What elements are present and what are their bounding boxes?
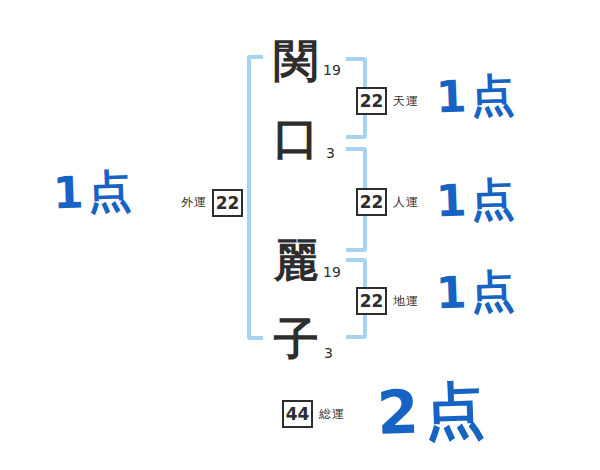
heaven-luck-label: 天運 (393, 95, 419, 107)
stroke-count-3: 19 (323, 265, 341, 279)
heaven-luck-score: 1点 (435, 73, 519, 120)
name-char-1: 関 (269, 38, 323, 83)
name-char-3: 麗 (269, 238, 323, 283)
person-luck-value-box: 22 (356, 188, 387, 216)
outer-luck-bracket (247, 55, 263, 340)
name-char-2: 口 (269, 116, 323, 161)
total-luck-label: 総運 (319, 408, 345, 420)
stroke-count-4: 3 (324, 346, 333, 360)
person-luck-score: 1点 (435, 177, 519, 224)
total-luck-value-box: 44 (282, 400, 313, 428)
total-luck-score: 2点 (376, 379, 492, 443)
outer-luck-value-box: 22 (212, 189, 243, 217)
earth-luck-label: 地運 (393, 295, 419, 307)
earth-luck-score: 1点 (435, 269, 519, 316)
heaven-luck-value-box: 22 (356, 87, 387, 115)
name-char-4: 子 (269, 316, 323, 361)
fortune-diagram: 関 口 麗 子 19 3 19 3 22 天運 1点 22 人運 1点 22 地… (0, 0, 600, 470)
outer-luck-score: 1点 (52, 169, 136, 216)
stroke-count-2: 3 (326, 146, 335, 160)
person-luck-label: 人運 (393, 196, 419, 208)
outer-luck-label: 外運 (181, 196, 207, 208)
earth-luck-value-box: 22 (356, 287, 387, 315)
stroke-count-1: 19 (323, 63, 341, 77)
